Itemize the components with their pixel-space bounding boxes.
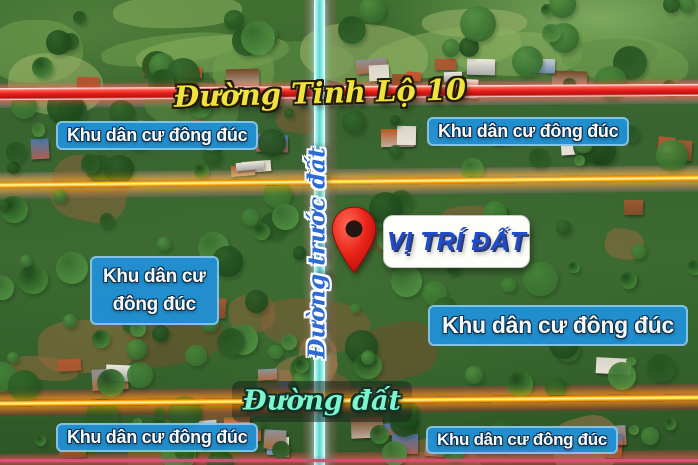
scenery-blob <box>663 139 693 161</box>
scenery-blob <box>603 226 646 263</box>
scenery-blob <box>5 49 107 121</box>
scenery-blob <box>53 189 67 203</box>
scenery-blob <box>465 366 482 383</box>
scenery-blob <box>9 353 79 382</box>
scenery-blob <box>6 142 26 162</box>
area-label-text: Khu dân cư đông đúc <box>67 125 247 146</box>
scenery-blob <box>272 204 299 231</box>
scenery-blob <box>391 266 422 297</box>
scenery-blob <box>556 220 571 235</box>
scenery-blob <box>452 31 583 76</box>
scenery-blob <box>549 0 576 18</box>
scenery-blob <box>267 437 283 455</box>
scenery-blob <box>58 358 82 372</box>
area-label-text: Khu dân cư đông đúc <box>67 427 247 448</box>
scenery-blob <box>242 209 259 226</box>
scenery-blob <box>529 50 538 59</box>
scenery-blob <box>355 58 387 75</box>
area-label-top-left: Khu dân cư đông đúc <box>56 121 258 150</box>
scenery-blob <box>157 237 171 251</box>
scenery-blob <box>362 349 375 362</box>
scenery-blob <box>63 314 77 328</box>
scenery-blob <box>256 134 289 152</box>
scenery-blob <box>268 345 283 360</box>
scenery-blob <box>113 0 243 30</box>
scenery-blob <box>44 149 134 229</box>
scenery-blob <box>7 162 20 175</box>
scenery-blob <box>143 59 169 77</box>
scenery-blob <box>92 330 110 348</box>
scenery-blob <box>228 324 259 355</box>
scenery-blob <box>281 334 297 350</box>
scenery-blob <box>459 37 479 57</box>
area-label-top-right: Khu dân cư đông đúc <box>427 117 629 146</box>
scenery-blob <box>32 123 46 137</box>
scenery-blob <box>207 450 234 465</box>
aerial-land-listing-image: Đường Tinh Lộ 10 Đường trước đất Đường đ… <box>0 0 698 465</box>
scenery-blob <box>142 51 172 81</box>
scenery-blob <box>256 132 279 145</box>
scenery-blob <box>0 196 28 224</box>
scenery-blob <box>608 362 637 391</box>
scenery-blob <box>626 357 635 366</box>
scenery-blob <box>253 223 270 240</box>
scenery-blob <box>687 260 698 275</box>
scenery-blob <box>242 160 271 173</box>
scenery-blob <box>392 434 418 454</box>
scenery-blob <box>236 161 265 171</box>
scenery-blob <box>523 262 558 297</box>
scenery-blob <box>370 425 389 444</box>
scenery-blob <box>389 145 402 158</box>
scenery-blob <box>460 6 496 42</box>
scenery-blob <box>100 28 240 72</box>
scenery-blob <box>342 110 366 134</box>
scenery-blob <box>665 418 676 429</box>
scenery-blob <box>97 369 125 397</box>
road-name-dirt-road: Đường đất <box>243 386 401 417</box>
scenery-blob <box>81 154 100 173</box>
area-label-text-line1: Khu dân cư <box>103 263 206 291</box>
scenery-blob <box>422 9 527 37</box>
scenery-blob <box>620 272 637 289</box>
area-label-text: Khu dân cư đông đúc <box>442 312 674 339</box>
scenery-blob <box>542 24 560 42</box>
scenery-blob <box>657 136 675 153</box>
scenery-blob <box>100 213 114 227</box>
scenery-blob <box>390 190 413 213</box>
location-pin-icon <box>330 206 378 274</box>
scenery-blob <box>86 155 114 183</box>
scenery-blob <box>624 200 643 215</box>
scenery-blob <box>37 319 137 375</box>
scenery-blob <box>184 66 202 77</box>
scenery-blob <box>631 244 646 259</box>
scenery-blob <box>512 46 543 77</box>
scenery-blob <box>549 23 579 53</box>
scenery-blob <box>529 59 555 73</box>
scenery-blob <box>152 325 169 342</box>
scenery-blob <box>560 37 657 74</box>
scenery-blob <box>149 53 175 79</box>
scenery-blob <box>397 126 416 145</box>
scenery-blob <box>241 21 275 55</box>
scenery-blob <box>628 274 637 283</box>
scenery-blob <box>613 46 646 79</box>
scenery-blob <box>32 57 53 78</box>
scenery-blob <box>46 30 71 55</box>
area-label-bottom-right: Khu dân cư đông đúc <box>426 426 618 454</box>
scenery-blob <box>185 345 206 366</box>
scenery-blob <box>20 255 31 266</box>
location-label-text: VỊ TRÍ ĐẤT <box>387 226 526 257</box>
road-name-front-road: Đường trước đất <box>304 147 331 358</box>
scenery-blob <box>245 290 268 313</box>
scenery-blob <box>0 276 14 301</box>
scenery-blob <box>435 59 456 71</box>
scenery-blob <box>442 39 460 57</box>
scenery-blob <box>258 368 278 380</box>
scenery-blob <box>260 26 279 45</box>
scenery-blob <box>647 354 675 382</box>
scenery-blob <box>354 352 381 379</box>
scenery-blob <box>0 362 17 392</box>
scenery-blob <box>568 262 579 273</box>
scenery-blob <box>127 362 153 388</box>
scenery-blob <box>194 164 209 179</box>
scenery-blob <box>422 281 447 306</box>
scenery-blob <box>0 19 83 84</box>
scenery-blob <box>73 11 86 24</box>
scenery-blob <box>345 330 378 363</box>
scenery-blob <box>224 10 244 30</box>
scenery-blob <box>596 357 632 375</box>
area-label-bottom-left: Khu dân cư đông đúc <box>56 423 258 452</box>
scenery-blob <box>232 26 262 56</box>
scenery-blob <box>56 252 88 284</box>
scenery-blob <box>359 0 386 23</box>
scenery-blob <box>272 441 290 459</box>
road-pink-line-bottom <box>0 459 698 462</box>
scenery-blob <box>30 139 49 160</box>
scenery-blob <box>663 0 679 13</box>
scenery-blob <box>126 339 147 360</box>
scenery-blob <box>361 351 375 365</box>
scenery-blob <box>574 155 585 166</box>
scenery-blob <box>18 265 48 295</box>
area-label-mid-left: Khu dân cư đông đúc <box>90 256 219 325</box>
scenery-blob <box>0 200 8 210</box>
scenery-blob <box>466 59 494 76</box>
scenery-blob <box>656 140 687 171</box>
area-label-mid-right: Khu dân cư đông đúc <box>428 305 688 346</box>
area-label-text: Khu dân cư đông đúc <box>437 430 607 450</box>
scenery-blob <box>641 427 659 445</box>
scenery-blob <box>154 407 167 420</box>
scenery-blob <box>294 358 309 373</box>
scenery-blob <box>338 16 365 43</box>
scenery-blob <box>507 371 532 396</box>
scenery-blob <box>350 304 359 313</box>
scenery-blob <box>231 164 256 177</box>
scenery-blob <box>217 328 245 356</box>
scenery-blob <box>258 129 286 157</box>
scenery-blob <box>679 0 695 13</box>
scenery-blob <box>529 148 549 168</box>
scenery-blob <box>7 352 19 364</box>
area-label-text-line2: đông đúc <box>113 291 196 319</box>
area-label-text: Khu dân cư đông đúc <box>438 121 618 142</box>
scenery-blob <box>260 212 287 239</box>
scenery-blob <box>35 435 46 446</box>
scenery-blob <box>390 115 401 126</box>
scenery-blob <box>62 33 79 50</box>
scenery-blob <box>380 422 413 436</box>
scenery-blob <box>228 294 275 333</box>
scenery-blob <box>381 129 414 147</box>
scenery-blob <box>135 30 290 79</box>
scenery-blob <box>264 429 287 449</box>
scenery-blob <box>541 4 553 16</box>
scenery-blob <box>91 368 128 391</box>
scenery-blob <box>629 425 639 435</box>
location-label: VỊ TRÍ ĐẤT <box>383 215 530 268</box>
scenery-blob <box>106 365 131 382</box>
scenery-blob <box>276 436 290 456</box>
scenery-blob <box>8 370 40 402</box>
scenery-blob <box>501 278 515 292</box>
